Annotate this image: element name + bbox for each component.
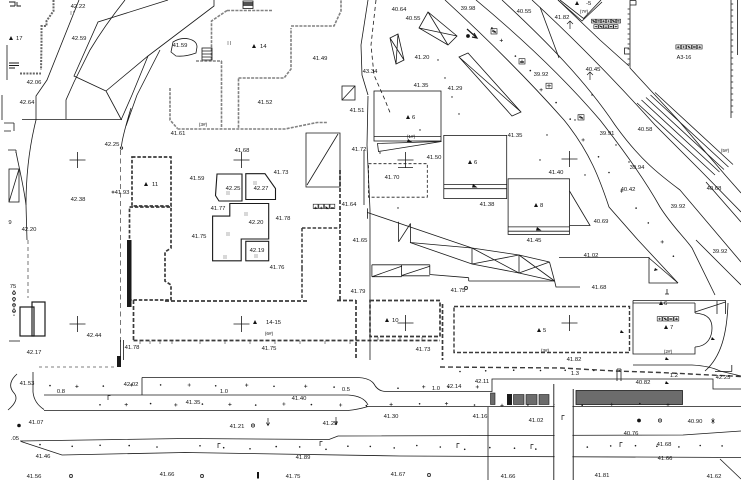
svg-text:41.53: 41.53 bbox=[20, 381, 35, 387]
svg-text:39.94: 39.94 bbox=[630, 165, 645, 171]
svg-text:41.29: 41.29 bbox=[448, 86, 463, 92]
svg-text:42.17: 42.17 bbox=[27, 350, 42, 356]
svg-text:11: 11 bbox=[152, 182, 158, 188]
svg-text:40.55: 40.55 bbox=[517, 9, 532, 15]
svg-text:42.19: 42.19 bbox=[250, 248, 265, 254]
svg-text:A3-16: A3-16 bbox=[677, 55, 692, 61]
svg-text:42.11: 42.11 bbox=[475, 379, 489, 385]
svg-text:40.90: 40.90 bbox=[688, 419, 703, 425]
svg-text:39.92: 39.92 bbox=[671, 204, 686, 210]
svg-text:42.25: 42.25 bbox=[716, 375, 731, 381]
svg-text:41.56: 41.56 bbox=[27, 474, 42, 480]
svg-text:41.67: 41.67 bbox=[391, 472, 406, 478]
svg-text:(3#): (3#) bbox=[541, 348, 550, 354]
svg-text:41.40: 41.40 bbox=[292, 396, 307, 402]
svg-text:41.66: 41.66 bbox=[160, 472, 175, 478]
svg-text:41.79: 41.79 bbox=[351, 289, 366, 295]
svg-text:41.68: 41.68 bbox=[592, 285, 607, 291]
svg-text:0.5: 0.5 bbox=[342, 387, 351, 393]
svg-text:42.14: 42.14 bbox=[447, 384, 462, 390]
svg-text:40.82: 40.82 bbox=[636, 380, 651, 386]
svg-text:42.25: 42.25 bbox=[226, 186, 241, 192]
svg-text:41.20: 41.20 bbox=[415, 55, 430, 61]
svg-text:41.75: 41.75 bbox=[451, 288, 466, 294]
svg-text:42.59: 42.59 bbox=[72, 36, 87, 42]
svg-text:41.82: 41.82 bbox=[567, 357, 582, 363]
svg-text:42.38: 42.38 bbox=[71, 197, 86, 203]
svg-text:41.51: 41.51 bbox=[350, 108, 365, 114]
svg-text:41.75: 41.75 bbox=[286, 474, 301, 480]
svg-text:41.07: 41.07 bbox=[29, 420, 44, 426]
svg-text:7: 7 bbox=[670, 325, 673, 331]
svg-text:41.52: 41.52 bbox=[258, 100, 273, 106]
svg-text:40.69: 40.69 bbox=[594, 219, 609, 225]
svg-text:41.78: 41.78 bbox=[125, 345, 140, 351]
svg-text:39.92: 39.92 bbox=[713, 249, 728, 255]
svg-text:41.16: 41.16 bbox=[473, 414, 488, 420]
svg-text:41.73: 41.73 bbox=[274, 170, 289, 176]
svg-text:41.66: 41.66 bbox=[501, 474, 516, 480]
svg-text:41.35: 41.35 bbox=[414, 83, 429, 89]
svg-text:41.45: 41.45 bbox=[527, 238, 542, 244]
svg-text:41.02: 41.02 bbox=[529, 418, 544, 424]
svg-text:39.91: 39.91 bbox=[600, 131, 615, 137]
svg-text:42.20: 42.20 bbox=[249, 220, 264, 226]
svg-text:40.76: 40.76 bbox=[624, 431, 639, 437]
svg-text:42.22: 42.22 bbox=[71, 4, 86, 10]
svg-text:(2#): (2#) bbox=[664, 349, 673, 355]
svg-text:.05: .05 bbox=[11, 436, 20, 442]
svg-text:17: 17 bbox=[16, 36, 23, 42]
svg-text:40.55: 40.55 bbox=[406, 16, 421, 22]
svg-text:(1#): (1#) bbox=[407, 134, 416, 140]
svg-text:41.76: 41.76 bbox=[270, 265, 285, 271]
svg-text:40.68: 40.68 bbox=[707, 186, 722, 192]
svg-text:1.0: 1.0 bbox=[432, 386, 441, 392]
svg-text:40.58: 40.58 bbox=[638, 127, 653, 133]
svg-text:41.89: 41.89 bbox=[296, 455, 311, 461]
svg-text:41.62: 41.62 bbox=[707, 474, 722, 480]
svg-text:10: 10 bbox=[392, 318, 399, 324]
svg-text:(6#): (6#) bbox=[265, 331, 274, 337]
svg-text:42.44: 42.44 bbox=[87, 333, 102, 339]
svg-text:-5: -5 bbox=[586, 1, 592, 7]
svg-text:41.49: 41.49 bbox=[313, 56, 328, 62]
svg-text:42.64: 42.64 bbox=[20, 100, 35, 106]
svg-text:42.27: 42.27 bbox=[254, 186, 269, 192]
svg-text:41.81: 41.81 bbox=[595, 473, 610, 479]
svg-text:41.68: 41.68 bbox=[657, 442, 672, 448]
svg-text:41.65: 41.65 bbox=[353, 238, 368, 244]
svg-text:41.75: 41.75 bbox=[192, 234, 207, 240]
svg-text:14: 14 bbox=[260, 44, 267, 50]
svg-text:41.64: 41.64 bbox=[342, 202, 357, 208]
svg-text:40.64: 40.64 bbox=[392, 7, 407, 13]
svg-text:41.02: 41.02 bbox=[584, 253, 599, 259]
svg-text:75: 75 bbox=[10, 284, 17, 290]
svg-text:(3#): (3#) bbox=[199, 122, 208, 128]
svg-text:0.8: 0.8 bbox=[57, 389, 66, 395]
svg-text:41.40: 41.40 bbox=[549, 170, 564, 176]
svg-text:41.50: 41.50 bbox=[427, 155, 442, 161]
svg-text:42.06: 42.06 bbox=[27, 80, 42, 86]
svg-text:(5#): (5#) bbox=[721, 148, 730, 154]
svg-text:41.35: 41.35 bbox=[508, 133, 523, 139]
svg-text:41.46: 41.46 bbox=[36, 454, 51, 460]
svg-text:42.25: 42.25 bbox=[105, 142, 120, 148]
svg-text:39.92: 39.92 bbox=[534, 72, 549, 78]
svg-text:41.75: 41.75 bbox=[262, 346, 277, 352]
svg-text:41.61: 41.61 bbox=[171, 131, 186, 137]
svg-text:41.72: 41.72 bbox=[352, 147, 367, 153]
svg-text:39.98: 39.98 bbox=[461, 6, 476, 12]
svg-text:41.66: 41.66 bbox=[658, 456, 673, 462]
svg-text:41.78: 41.78 bbox=[276, 216, 291, 222]
svg-text:41.38: 41.38 bbox=[480, 202, 495, 208]
svg-text:41.35: 41.35 bbox=[186, 400, 201, 406]
svg-text:1.0: 1.0 bbox=[220, 389, 229, 395]
svg-text:41.21: 41.21 bbox=[230, 424, 245, 430]
svg-text:42.20: 42.20 bbox=[22, 227, 37, 233]
svg-text:41.30: 41.30 bbox=[384, 414, 399, 420]
svg-text:41.77: 41.77 bbox=[211, 206, 226, 212]
svg-text:42.02: 42.02 bbox=[124, 382, 139, 388]
svg-text:9: 9 bbox=[8, 220, 11, 226]
svg-text:41.82: 41.82 bbox=[555, 15, 570, 21]
svg-text:41.59: 41.59 bbox=[190, 176, 205, 182]
svg-text:14-15: 14-15 bbox=[266, 320, 282, 326]
svg-text:41.93: 41.93 bbox=[115, 190, 130, 196]
svg-text:40.42: 40.42 bbox=[621, 187, 636, 193]
svg-text:41.70: 41.70 bbox=[385, 175, 400, 181]
svg-text:41.73: 41.73 bbox=[416, 347, 431, 353]
svg-text:43.34: 43.34 bbox=[363, 69, 378, 75]
svg-text:40.45: 40.45 bbox=[586, 67, 601, 73]
svg-text:1.3: 1.3 bbox=[571, 371, 580, 377]
svg-text:41.68: 41.68 bbox=[235, 148, 250, 154]
svg-text:(7#): (7#) bbox=[580, 9, 589, 15]
svg-text:41.59: 41.59 bbox=[173, 43, 188, 49]
svg-text:1.2: 1.2 bbox=[670, 373, 678, 379]
